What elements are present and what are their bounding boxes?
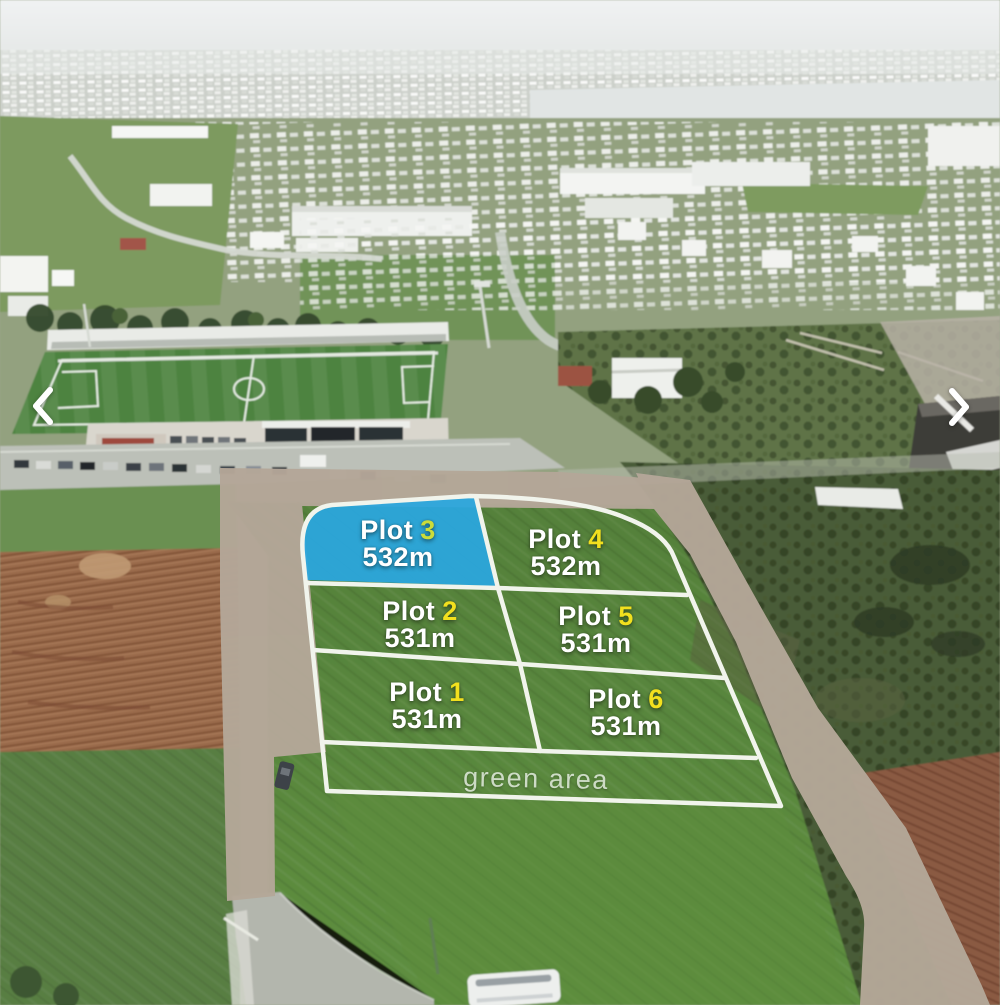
plot-3-highlight bbox=[302, 497, 498, 586]
listing-photo-viewer: Plot3 532m Plot4 532m Plot2 531m Plot5 5… bbox=[0, 0, 1000, 1005]
chevron-right-icon bbox=[946, 387, 972, 427]
aerial-photo bbox=[0, 0, 1000, 1005]
carousel-prev-button[interactable] bbox=[20, 377, 66, 435]
carousel-next-button[interactable] bbox=[936, 378, 982, 436]
left-fields bbox=[0, 484, 240, 1005]
chevron-left-icon bbox=[30, 386, 56, 426]
